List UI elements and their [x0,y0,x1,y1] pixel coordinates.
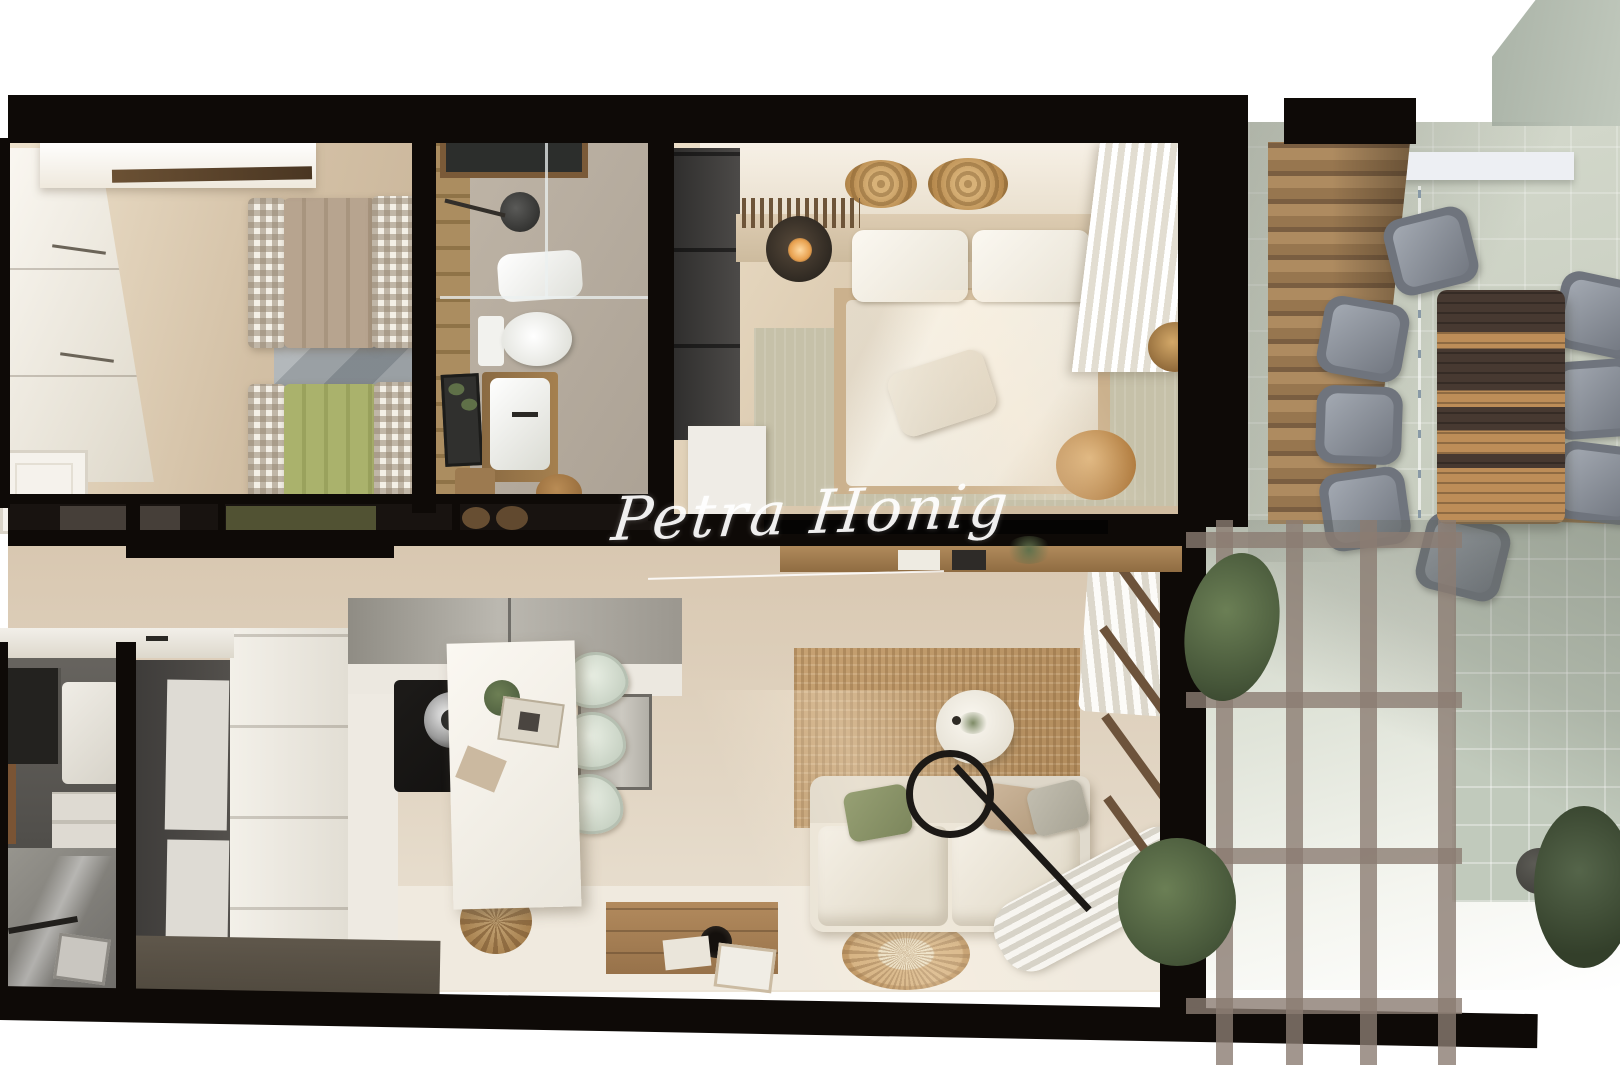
terrace-plant [1118,838,1236,966]
pergola-beam-horizontal [1186,998,1462,1014]
glass-reflection [60,506,180,530]
bathroom-2-mirror [0,668,61,764]
table-plant [958,712,988,734]
wall-stairs-cap [1284,98,1416,144]
pergola-beam-vertical [1360,520,1377,1065]
wall-bathroom-master [648,126,674,521]
kitchen-lower-cabinets [112,935,441,997]
bathroom-2-sink [62,682,120,784]
wall-bathroom-2 [116,642,136,1004]
glass-reflection-basket [496,506,528,530]
glass-reflection-green-bed [226,506,376,530]
wall-left-lower [0,642,8,1002]
wall-entry-step [126,542,394,558]
decor-books [663,936,712,971]
glass-mullion [452,504,460,532]
island-tray [497,696,565,748]
master-wardrobe [668,148,740,440]
rattan-wall-medallion [928,158,1008,210]
shelf-plant [1006,536,1052,564]
outdoor-chair [1314,293,1412,385]
shower-drain [53,933,111,986]
wall-bedroom-bathroom [412,128,436,513]
wardrobe-handle [52,244,106,254]
wall-top [8,95,1248,143]
single-bed-green-duvet [284,384,378,506]
bathroom-sink [490,378,550,470]
shower-head [500,192,540,232]
shelf-decor-paper [898,550,940,570]
bed-pillow [972,230,1090,302]
shower-tray [496,249,583,303]
wall-bottom [0,986,1538,1048]
adjacent-building [1492,0,1620,126]
single-bed-green-blanket [248,384,286,506]
single-bed-taupe-duvet [284,198,376,348]
toilet [502,312,572,366]
glass-partition-frame [8,494,658,504]
pergola-beam-horizontal [1186,848,1462,864]
toilet-tank [478,316,504,366]
glass-partition [8,504,656,532]
floor-plan-render: Petra Honig [0,0,1620,1080]
pergola-beam-vertical [1286,520,1303,1065]
single-bed-taupe-blanket [248,198,286,348]
glass-reflection-basket [462,507,490,529]
wall-left [0,138,10,508]
glass-mullion [218,504,225,532]
nightstand-lamp [788,238,812,262]
wardrobe-handle [60,352,114,362]
mirror-plant [448,383,465,396]
pergola-beam-vertical [1438,520,1456,1065]
pergola-beam-horizontal [1186,532,1462,548]
decor-box [714,943,777,994]
mirror-plant [461,398,478,411]
sofa-seat-cushion [818,826,948,926]
bed-pillow [852,230,968,302]
utility-cabinet-door [165,679,230,830]
outdoor-chair [1315,385,1404,466]
shelf-decor-tablet [952,550,986,570]
outdoor-dining-table [1437,290,1565,524]
shower-glass-panel [545,140,548,298]
shower-glass-panel [440,296,648,299]
watermark-text: Petra Honig [608,471,1015,555]
table-decor [952,716,961,725]
bathroom-mirror [441,373,484,467]
bathroom-2-faucet [146,636,168,641]
rattan-pouf [1056,430,1136,500]
pergola-white-beam [1402,152,1574,180]
sink-faucet [512,412,538,417]
wall-right-upper [1178,95,1248,527]
